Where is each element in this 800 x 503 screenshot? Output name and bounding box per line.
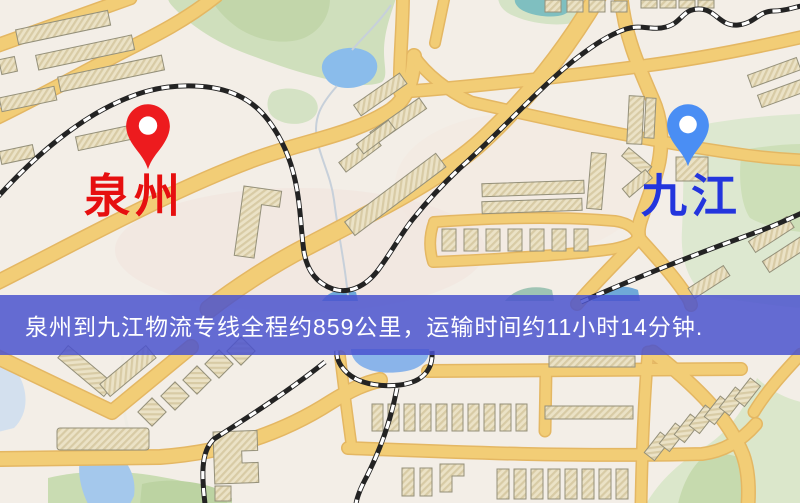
route-info-text: 泉州到九江物流专线全程约859公里，运输时间约11小时14分钟.: [25, 308, 703, 342]
origin-label: 泉州: [84, 174, 184, 220]
destination-label: 九江: [641, 174, 741, 220]
route-info-banner: 泉州到九江物流专线全程约859公里，运输时间约11小时14分钟.: [0, 295, 800, 355]
map-canvas: 泉州 九江 泉州到九江物流专线全程约859公里，运输时间约11小时14分钟.: [0, 0, 800, 503]
origin-pin-icon: [125, 103, 171, 175]
map-artwork: [0, 0, 800, 503]
destination-pin-icon: [666, 102, 710, 173]
